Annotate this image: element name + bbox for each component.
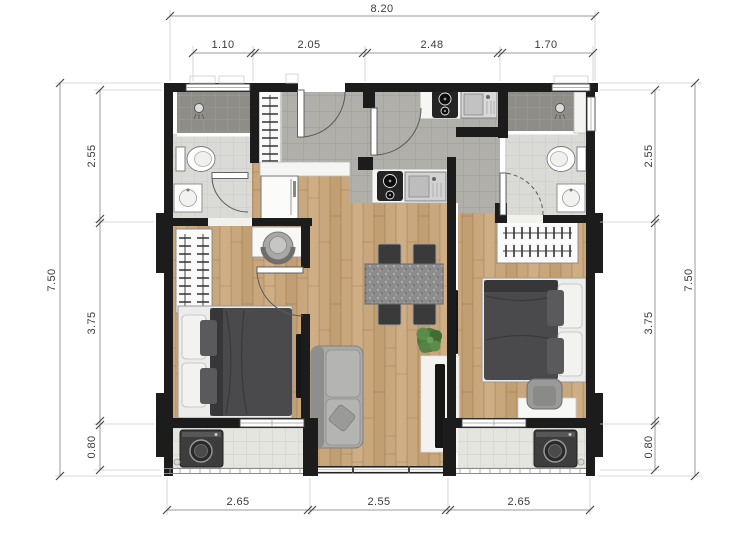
dim-right-seg-1: 2.55 — [643, 144, 655, 167]
balcony-left-railing — [170, 469, 300, 474]
living-picture-window — [318, 466, 443, 474]
dim-left-seg-1: 2.55 — [86, 144, 98, 167]
kitchen-counter-top — [420, 88, 500, 119]
bath-left-wall — [250, 83, 259, 163]
dim-top-total: 8.20 — [370, 3, 393, 15]
shower-right-tile — [508, 88, 578, 133]
dim-left-seg-3: 0.80 — [86, 435, 98, 458]
dim-top-seg-1: 1.10 — [211, 39, 234, 51]
vanity-sink-right — [557, 184, 585, 212]
dim-top-seg-2: 2.05 — [297, 39, 320, 51]
entry-opening — [298, 84, 345, 92]
cooktop — [432, 90, 458, 118]
dining-chair — [378, 244, 401, 266]
floor-plan-canvas: 8.20 1.10 2.05 2.48 1.70 2.65 2.55 2.65 … — [0, 0, 750, 551]
refrigerator — [261, 176, 298, 220]
dim-left-total: 7.50 — [46, 268, 58, 291]
floor-drain-left — [174, 459, 180, 465]
dim-bottom-seg-2: 2.55 — [367, 496, 390, 508]
hall-closet — [259, 90, 281, 168]
bed-right — [482, 278, 586, 382]
dining-chair — [413, 303, 436, 325]
vanity-sink-left — [174, 184, 202, 212]
dim-right-seg-2: 3.75 — [643, 311, 655, 334]
corridor-tile — [458, 137, 500, 213]
shower-ledge — [574, 92, 586, 133]
dining-chair — [378, 303, 401, 325]
bed-left — [178, 306, 292, 418]
wardrobe-right — [497, 222, 578, 263]
plant — [417, 328, 443, 354]
washing-machine-right — [534, 430, 577, 467]
dim-right-total: 7.50 — [683, 268, 695, 291]
shower-right-glass — [508, 131, 578, 135]
bath-left-door-opening — [208, 218, 252, 226]
washing-machine-left — [180, 430, 223, 467]
dim-left-seg-2: 3.75 — [86, 311, 98, 334]
dim-top-seg-3: 2.48 — [420, 39, 443, 51]
kitchen-stub-wall — [358, 157, 373, 170]
shoe-cabinet — [260, 162, 350, 176]
toilet-right — [547, 147, 586, 172]
bath-right-wall — [498, 83, 508, 138]
dim-top-seg-4: 1.70 — [534, 39, 557, 51]
kitchen-counter-island — [372, 169, 449, 203]
entry-stub-wall — [363, 83, 375, 108]
entry-mat — [286, 74, 298, 83]
wardrobe-left — [176, 229, 212, 313]
dim-right-seg-3: 0.80 — [643, 435, 655, 458]
bath-right-door-opening — [507, 215, 543, 223]
dining-chair — [413, 244, 436, 266]
desk-chair — [263, 232, 293, 262]
sofa — [311, 346, 363, 448]
bedroom-left-wall-upper — [301, 218, 310, 268]
dining-table — [365, 264, 443, 304]
dim-bottom-seg-1: 2.65 — [226, 496, 249, 508]
kitchen-sink — [461, 91, 497, 118]
shower-left-tile — [177, 88, 252, 136]
shower-left-glass — [177, 133, 252, 137]
toilet-left — [176, 147, 215, 172]
cooktop-2 — [377, 171, 403, 201]
kitchen-sink-2 — [405, 172, 446, 201]
bedroom-right-wall — [447, 157, 456, 425]
dim-bottom-seg-3: 2.65 — [507, 496, 530, 508]
balcony-right-railing — [460, 469, 580, 474]
bedroom-left-wall-lower — [301, 314, 310, 425]
floor-plan-drawing: 8.20 1.10 2.05 2.48 1.70 2.65 2.55 2.65 … — [0, 0, 750, 551]
floor-drain-right — [578, 459, 584, 465]
